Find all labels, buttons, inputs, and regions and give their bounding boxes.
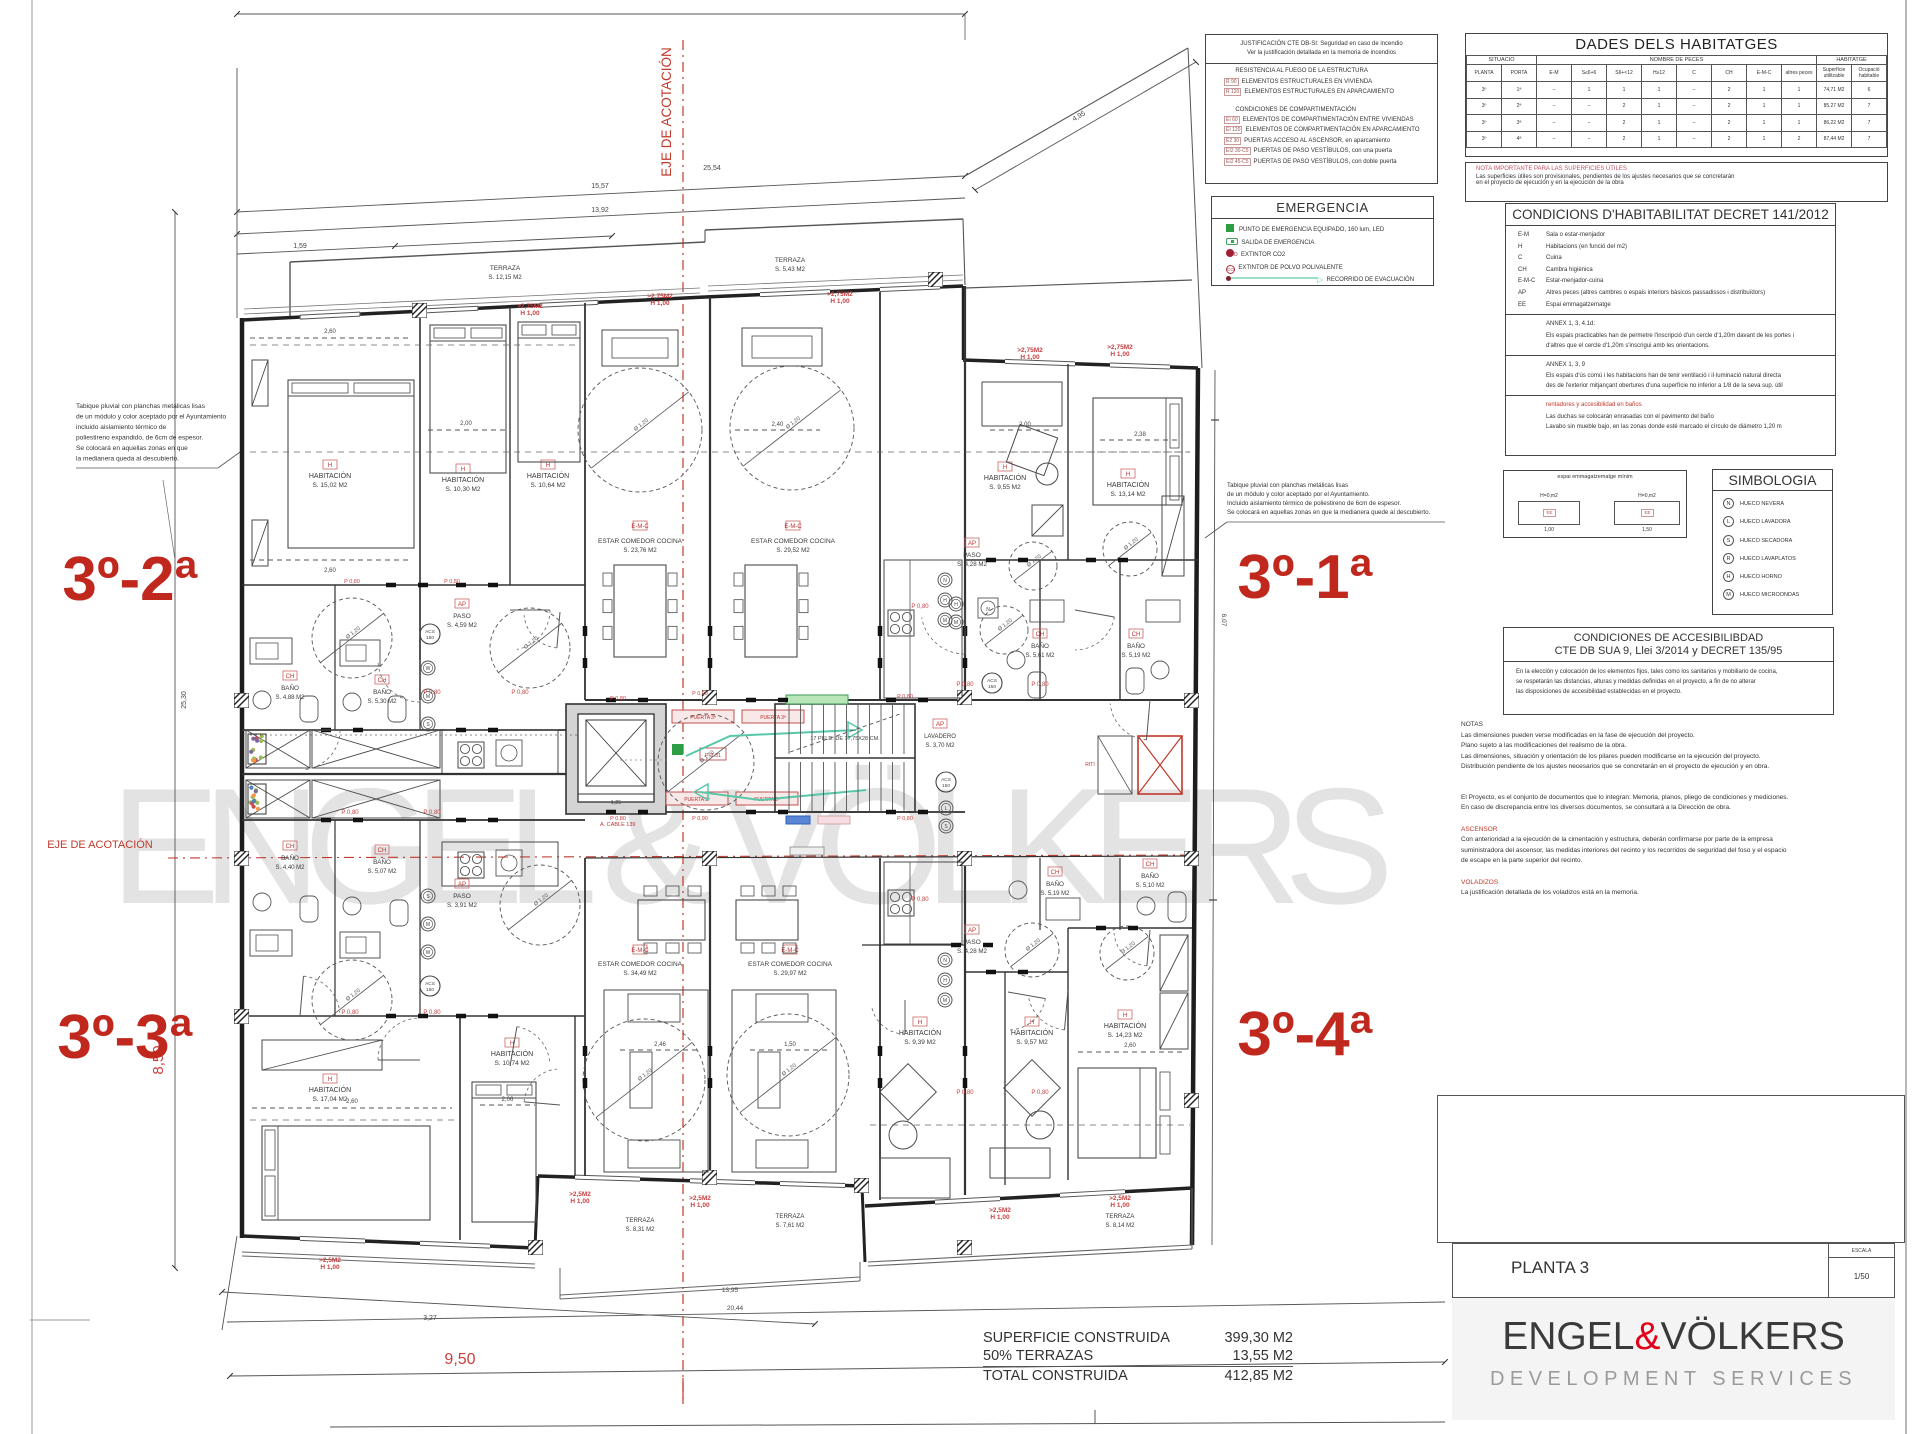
svg-text:P 0,80: P 0,80 <box>897 816 913 822</box>
svg-text:EJE DE ACOTACIÓN: EJE DE ACOTACIÓN <box>659 47 674 177</box>
svg-text:S: S <box>426 722 430 728</box>
svg-text:3º-3ª: 3º-3ª <box>57 1003 192 1072</box>
svg-text:P 0,90: P 0,90 <box>692 816 708 822</box>
svg-text:S. 3,70 M2: S. 3,70 M2 <box>925 743 955 749</box>
svg-text:CH: CH <box>378 678 387 684</box>
svg-text:N: N <box>943 578 947 584</box>
svg-text:P 0,80: P 0,80 <box>341 810 359 816</box>
svg-text:Tabique pluvial con planchas m: Tabique pluvial con planchas metálicas l… <box>76 403 206 410</box>
svg-text:BAÑO: BAÑO <box>1141 871 1159 880</box>
svg-text:de un módulo y color aceptado: de un módulo y color aceptado por el Ayu… <box>76 414 227 421</box>
svg-text:S. 29,97 M2: S. 29,97 M2 <box>773 970 807 977</box>
svg-text:2,00: 2,00 <box>1019 422 1031 428</box>
svg-text:P 0,80: P 0,80 <box>956 682 974 688</box>
svg-text:H 1,00: H 1,00 <box>570 1198 590 1205</box>
svg-text:>2,75M2: >2,75M2 <box>1017 347 1043 354</box>
svg-text:150: 150 <box>426 987 434 993</box>
svg-text:RITI: RITI <box>1085 762 1094 768</box>
svg-text:2,60: 2,60 <box>1124 1043 1136 1049</box>
svg-text:CH: CH <box>378 848 387 854</box>
svg-text:S. 14,23 M2: S. 14,23 M2 <box>1107 1032 1142 1039</box>
svg-text:H: H <box>328 463 332 469</box>
svg-text:S. 10,74 M2: S. 10,74 M2 <box>494 1060 529 1067</box>
svg-text:PASO: PASO <box>963 552 981 559</box>
svg-text:H: H <box>461 467 465 473</box>
svg-text:S. 5,61 M2: S. 5,61 M2 <box>1025 653 1055 659</box>
svg-text:P 0,80: P 0,80 <box>897 694 913 700</box>
svg-text:S. 8,14 M2: S. 8,14 M2 <box>1105 1223 1135 1229</box>
svg-text:H: H <box>1030 1020 1034 1026</box>
svg-text:BAÑO: BAÑO <box>1031 641 1049 650</box>
svg-text:Ø 1,20: Ø 1,20 <box>1120 941 1137 956</box>
svg-text:ESTAR COMEDOR COCINA: ESTAR COMEDOR COCINA <box>598 961 683 968</box>
svg-text:>2,75M2: >2,75M2 <box>517 303 543 310</box>
svg-text:PUERTA 3ª: PUERTA 3ª <box>684 797 710 803</box>
svg-text:H: H <box>1003 465 1007 471</box>
svg-text:PUERTA 3ª: PUERTA 3ª <box>760 715 786 721</box>
svg-text:BAÑO: BAÑO <box>1046 879 1064 888</box>
svg-text:BAÑO: BAÑO <box>1127 641 1145 650</box>
svg-text:ENGEL & VÖLKERS: ENGEL & VÖLKERS <box>110 754 1400 938</box>
svg-text:17 PELD. DE 17,75X28 CM.: 17 PELD. DE 17,75X28 CM. <box>810 736 880 742</box>
svg-text:H: H <box>328 1077 332 1083</box>
svg-text:S. 9,57 M2: S. 9,57 M2 <box>1016 1039 1048 1046</box>
svg-text:BAÑO: BAÑO <box>281 853 299 862</box>
svg-text:S. 9,39 M2: S. 9,39 M2 <box>904 1039 936 1046</box>
svg-text:AP: AP <box>936 722 944 728</box>
svg-text:H 1,00: H 1,00 <box>690 1202 710 1209</box>
svg-text:S. 4,28 M2: S. 4,28 M2 <box>957 561 987 568</box>
svg-text:P 0,80: P 0,80 <box>956 1090 974 1096</box>
svg-text:S. 5,43 M2: S. 5,43 M2 <box>775 266 805 273</box>
svg-text:H 1,00: H 1,00 <box>650 300 670 307</box>
svg-text:H: H <box>943 978 947 984</box>
svg-text:3º-2ª: 3º-2ª <box>62 545 197 614</box>
svg-text:1,59: 1,59 <box>293 243 307 250</box>
svg-text:LAVADERO: LAVADERO <box>924 734 956 740</box>
svg-text:HABITACIÓN: HABITACIÓN <box>527 471 569 480</box>
svg-text:HABITACIÓN: HABITACIÓN <box>1011 1028 1053 1037</box>
svg-text:2,38: 2,38 <box>1134 432 1146 438</box>
svg-text:ESTAR COMEDOR COCINA: ESTAR COMEDOR COCINA <box>598 538 683 545</box>
svg-text:P 0,80: P 0,80 <box>1031 1090 1049 1096</box>
svg-text:1,50: 1,50 <box>784 1042 796 1048</box>
svg-text:6,07: 6,07 <box>1220 614 1227 627</box>
svg-text:Se colocará en aquellas zonas: Se colocará en aquellas zonas en que la … <box>1227 509 1431 516</box>
svg-text:Se colocará en aquellas zonas: Se colocará en aquellas zonas en que <box>76 445 188 452</box>
svg-text:ACS: ACS <box>425 629 435 635</box>
svg-text:S. 7,61 M2: S. 7,61 M2 <box>775 1223 805 1229</box>
svg-text:>2,5M2: >2,5M2 <box>689 1195 711 1202</box>
svg-text:25,30: 25,30 <box>181 691 188 709</box>
svg-text:>2,5M2: >2,5M2 <box>319 1257 341 1264</box>
svg-text:M: M <box>943 998 947 1004</box>
svg-text:150: 150 <box>426 635 434 641</box>
svg-text:S. 3,91 M2: S. 3,91 M2 <box>447 902 477 909</box>
svg-text:S. 17,04 M2: S. 17,04 M2 <box>312 1096 347 1103</box>
svg-text:H: H <box>1123 1013 1127 1019</box>
svg-text:>2,75M2: >2,75M2 <box>1107 344 1133 351</box>
svg-text:H 1,00: H 1,00 <box>1020 354 1040 361</box>
svg-text:S. 15,02 M2: S. 15,02 M2 <box>312 482 347 489</box>
svg-text:Ø 1,20: Ø 1,20 <box>633 418 650 433</box>
svg-text:H: H <box>1126 472 1130 478</box>
svg-text:CH: CH <box>1051 870 1060 876</box>
svg-text:H: H <box>954 602 958 608</box>
svg-text:H: H <box>943 598 947 604</box>
svg-text:BAÑO: BAÑO <box>373 687 391 696</box>
svg-text:P 0,80: P 0,80 <box>610 816 626 822</box>
svg-text:Ø 1,20: Ø 1,20 <box>781 1063 798 1078</box>
svg-text:incluido aislamiento térmico d: incluido aislamiento térmico de <box>76 424 166 431</box>
svg-text:CH: CH <box>1036 632 1045 638</box>
svg-text:S. 10,30 M2: S. 10,30 M2 <box>445 486 480 493</box>
svg-text:CH: CH <box>1146 862 1155 868</box>
svg-text:Ø 1,20: Ø 1,20 <box>785 416 802 431</box>
svg-text:3º-1ª: 3º-1ª <box>1237 543 1372 612</box>
svg-text:Ø 1,20: Ø 1,20 <box>1123 537 1140 552</box>
svg-text:la medianera queda al descubie: la medianera queda al descubierto. <box>76 456 179 463</box>
svg-text:S. 29,52 M2: S. 29,52 M2 <box>776 547 810 554</box>
svg-text:AP: AP <box>968 541 976 547</box>
svg-text:ESTAR COMEDOR COCINA: ESTAR COMEDOR COCINA <box>751 538 836 545</box>
svg-text:TERRAZA: TERRAZA <box>775 257 806 264</box>
svg-text:E-M-C: E-M-C <box>784 524 802 530</box>
svg-text:EJE DE ACOTACIÓN: EJE DE ACOTACIÓN <box>47 838 153 851</box>
svg-text:P 0,80: P 0,80 <box>344 579 360 585</box>
svg-text:S. 5,30 M2: S. 5,30 M2 <box>367 699 397 705</box>
svg-text:>2,75M2: >2,75M2 <box>647 293 673 300</box>
svg-text:2,60: 2,60 <box>324 568 336 574</box>
svg-text:S. 10,64 M2: S. 10,64 M2 <box>530 482 565 489</box>
svg-text:TERRAZA: TERRAZA <box>1106 1213 1136 1220</box>
svg-text:S. 23,76 M2: S. 23,76 M2 <box>623 547 657 554</box>
svg-text:H: H <box>546 463 550 469</box>
svg-text:poliestireno expandido, de 6cm: poliestireno expandido, de 6cm de espeso… <box>76 435 203 442</box>
svg-text:S. 5,07 M2: S. 5,07 M2 <box>367 869 397 875</box>
svg-text:CH: CH <box>286 844 295 850</box>
svg-text:HABITACIÓN: HABITACIÓN <box>1104 1021 1146 1030</box>
svg-text:TERRAZA: TERRAZA <box>626 1217 656 1224</box>
svg-text:H 1,00: H 1,00 <box>830 298 850 305</box>
svg-text:P 0,80: P 0,80 <box>341 1010 359 1016</box>
svg-text:S. 34,49 M2: S. 34,49 M2 <box>623 970 657 977</box>
svg-text:2,60: 2,60 <box>324 329 336 335</box>
svg-text:de un módulo y color aceptado: de un módulo y color aceptado por el Ayu… <box>1227 491 1370 498</box>
svg-text:P 0,90: P 0,90 <box>692 691 708 697</box>
svg-text:TERRAZA: TERRAZA <box>490 265 521 272</box>
svg-text:9,50: 9,50 <box>444 1351 475 1368</box>
svg-text:M: M <box>943 618 947 624</box>
svg-text:H: H <box>918 1020 922 1026</box>
svg-text:TERRAZA: TERRAZA <box>776 1213 806 1220</box>
svg-text:Tabique pluvial con planchas m: Tabique pluvial con planchas metálicas l… <box>1227 482 1348 489</box>
svg-text:H 1,00: H 1,00 <box>990 1214 1010 1221</box>
svg-text:2,46: 2,46 <box>654 1042 666 1048</box>
svg-text:E-M-C: E-M-C <box>631 524 649 530</box>
svg-text:20,44: 20,44 <box>727 1305 744 1312</box>
svg-text:N: N <box>986 607 990 613</box>
svg-text:M: M <box>954 620 958 626</box>
svg-text:Ø 1,20: Ø 1,20 <box>523 636 540 651</box>
svg-text:3º-4ª: 3º-4ª <box>1237 1000 1372 1069</box>
svg-text:2,40: 2,40 <box>772 422 784 428</box>
svg-text:Ø 1,20: Ø 1,20 <box>1025 938 1042 953</box>
svg-text:ACS: ACS <box>941 777 951 783</box>
svg-text:HABITACIÓN: HABITACIÓN <box>309 471 351 480</box>
svg-text:H 1,00: H 1,00 <box>1110 351 1130 358</box>
svg-text:>2,5M2: >2,5M2 <box>569 1191 591 1198</box>
svg-text:HABITACIÓN: HABITACIÓN <box>1107 480 1149 489</box>
svg-text:CH: CH <box>1132 632 1141 638</box>
svg-text:BAÑO: BAÑO <box>373 857 391 866</box>
svg-text:150: 150 <box>942 783 950 789</box>
svg-text:13,92: 13,92 <box>591 207 609 214</box>
svg-text:Ø 1,20: Ø 1,20 <box>345 988 362 1003</box>
svg-text:1,25: 1,25 <box>611 800 622 806</box>
svg-text:H 1,00: H 1,00 <box>1110 1202 1130 1209</box>
svg-text:ACS: ACS <box>987 678 997 684</box>
svg-text:P 0,80: P 0,80 <box>511 690 529 696</box>
svg-text:P 0,80: P 0,80 <box>423 810 441 816</box>
svg-text:Incluido aislamiento térmico d: Incluido aislamiento térmico de poliesti… <box>1227 500 1401 507</box>
svg-text:P 0,80: P 0,80 <box>911 897 929 903</box>
svg-text:W: W <box>426 666 431 672</box>
svg-text:S. 9,55 M2: S. 9,55 M2 <box>989 484 1021 491</box>
svg-text:H 1,00: H 1,00 <box>320 1264 340 1271</box>
svg-text:S. 8,31 M2: S. 8,31 M2 <box>625 1227 655 1233</box>
svg-text:2,00: 2,00 <box>460 421 472 427</box>
svg-text:4,95: 4,95 <box>1072 110 1087 123</box>
svg-text:Ø 1,20: Ø 1,20 <box>997 618 1014 633</box>
svg-text:S. 5,19 M2: S. 5,19 M2 <box>1040 891 1070 897</box>
svg-text:Ø 1,20: Ø 1,20 <box>637 1068 654 1083</box>
svg-text:25,54: 25,54 <box>703 165 721 172</box>
svg-text:>2,5M2: >2,5M2 <box>989 1207 1011 1214</box>
svg-text:W: W <box>426 950 431 956</box>
svg-text:M: M <box>426 922 430 928</box>
svg-text:>2,5M2: >2,5M2 <box>1109 1195 1131 1202</box>
svg-text:AP: AP <box>968 928 976 934</box>
svg-text:HABITACIÓN: HABITACIÓN <box>984 473 1026 482</box>
svg-text:CH: CH <box>286 674 295 680</box>
svg-text:S. 12,15 M2: S. 12,15 M2 <box>488 274 522 281</box>
svg-text:15,57: 15,57 <box>591 183 609 190</box>
svg-text:ACS: ACS <box>425 981 435 987</box>
svg-text:P 0,80: P 0,80 <box>911 604 929 610</box>
svg-text:L: L <box>945 806 948 812</box>
svg-text:P 0,80: P 0,80 <box>444 579 460 585</box>
svg-text:ESTAR COMEDOR COCINA: ESTAR COMEDOR COCINA <box>748 961 833 968</box>
svg-text:Ø 1,20: Ø 1,20 <box>345 626 362 641</box>
svg-text:P 0,80: P 0,80 <box>1031 682 1049 688</box>
svg-text:2,60: 2,60 <box>346 1099 358 1105</box>
svg-text:S. 4,40 M2: S. 4,40 M2 <box>275 865 305 871</box>
svg-text:P 0,80: P 0,80 <box>610 696 626 702</box>
svg-text:A. CABLE 139: A. CABLE 139 <box>600 822 635 828</box>
svg-text:>2,75M2: >2,75M2 <box>827 291 853 298</box>
svg-text:PASO: PASO <box>453 893 471 900</box>
svg-text:S. 4,59 M2: S. 4,59 M2 <box>447 622 477 629</box>
svg-text:HABITACIÓN: HABITACIÓN <box>309 1085 351 1094</box>
svg-text:P 0,80: P 0,80 <box>423 690 441 696</box>
svg-text:PASO: PASO <box>453 613 471 620</box>
svg-text:N: N <box>943 958 947 964</box>
svg-text:S. 5,10 M2: S. 5,10 M2 <box>1135 883 1165 889</box>
svg-text:HABITACIÓN: HABITACIÓN <box>442 475 484 484</box>
svg-text:S. 5,19 M2: S. 5,19 M2 <box>1121 653 1151 659</box>
svg-text:AP: AP <box>458 602 466 608</box>
svg-text:S. 13,14 M2: S. 13,14 M2 <box>1110 491 1145 498</box>
svg-text:BAÑO: BAÑO <box>281 683 299 692</box>
svg-text:AP: AP <box>458 882 466 888</box>
svg-text:PASO: PASO <box>963 939 981 946</box>
svg-text:150: 150 <box>988 684 996 690</box>
svg-text:2,06: 2,06 <box>502 1097 514 1103</box>
svg-text:H 1,00: H 1,00 <box>520 310 540 317</box>
svg-text:S. 4,28 M2: S. 4,28 M2 <box>957 948 987 955</box>
